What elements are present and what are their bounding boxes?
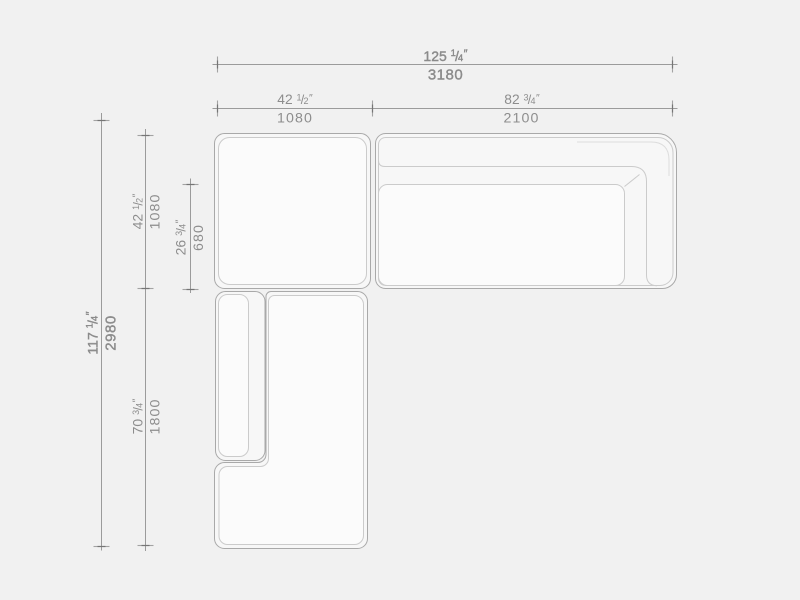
svg-text:1800: 1800 [148,399,164,435]
svg-text:3180: 3180 [428,67,463,84]
svg-text:2980: 2980 [103,315,120,350]
svg-text:1080: 1080 [277,111,313,127]
svg-text:1080: 1080 [148,194,164,230]
svg-text:2100: 2100 [504,111,540,127]
svg-text:680: 680 [191,224,207,251]
